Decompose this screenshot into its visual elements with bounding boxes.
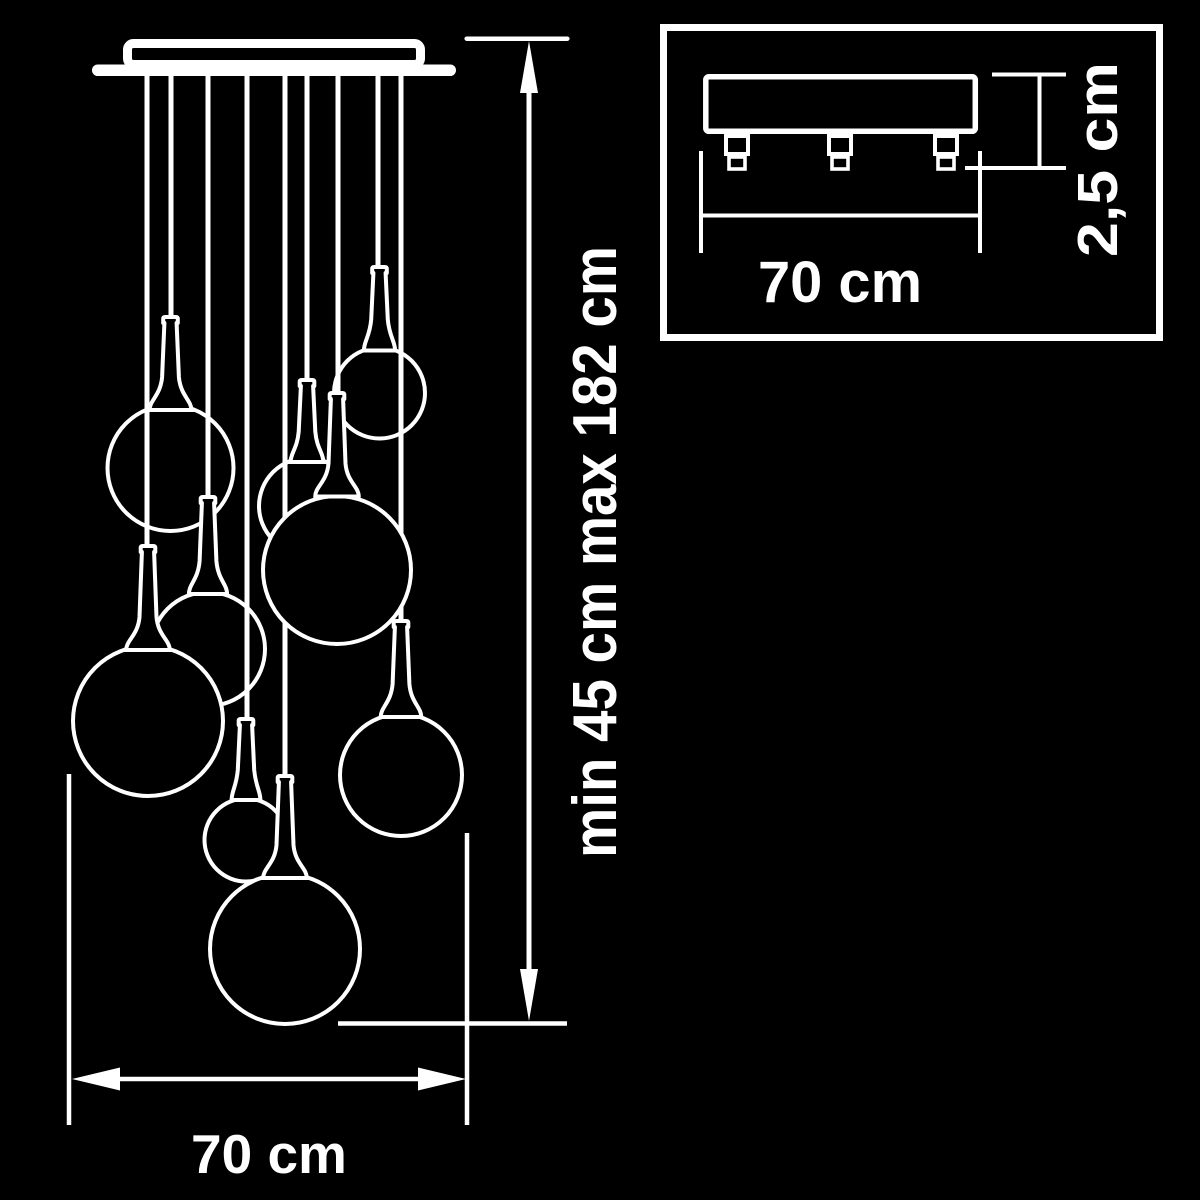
svg-text:2,5 cm: 2,5 cm	[1066, 62, 1130, 257]
svg-text:70 cm: 70 cm	[191, 1123, 347, 1185]
svg-text:min 45 cm max 182 cm: min 45 cm max 182 cm	[561, 246, 630, 858]
svg-text:70 cm: 70 cm	[758, 250, 922, 315]
